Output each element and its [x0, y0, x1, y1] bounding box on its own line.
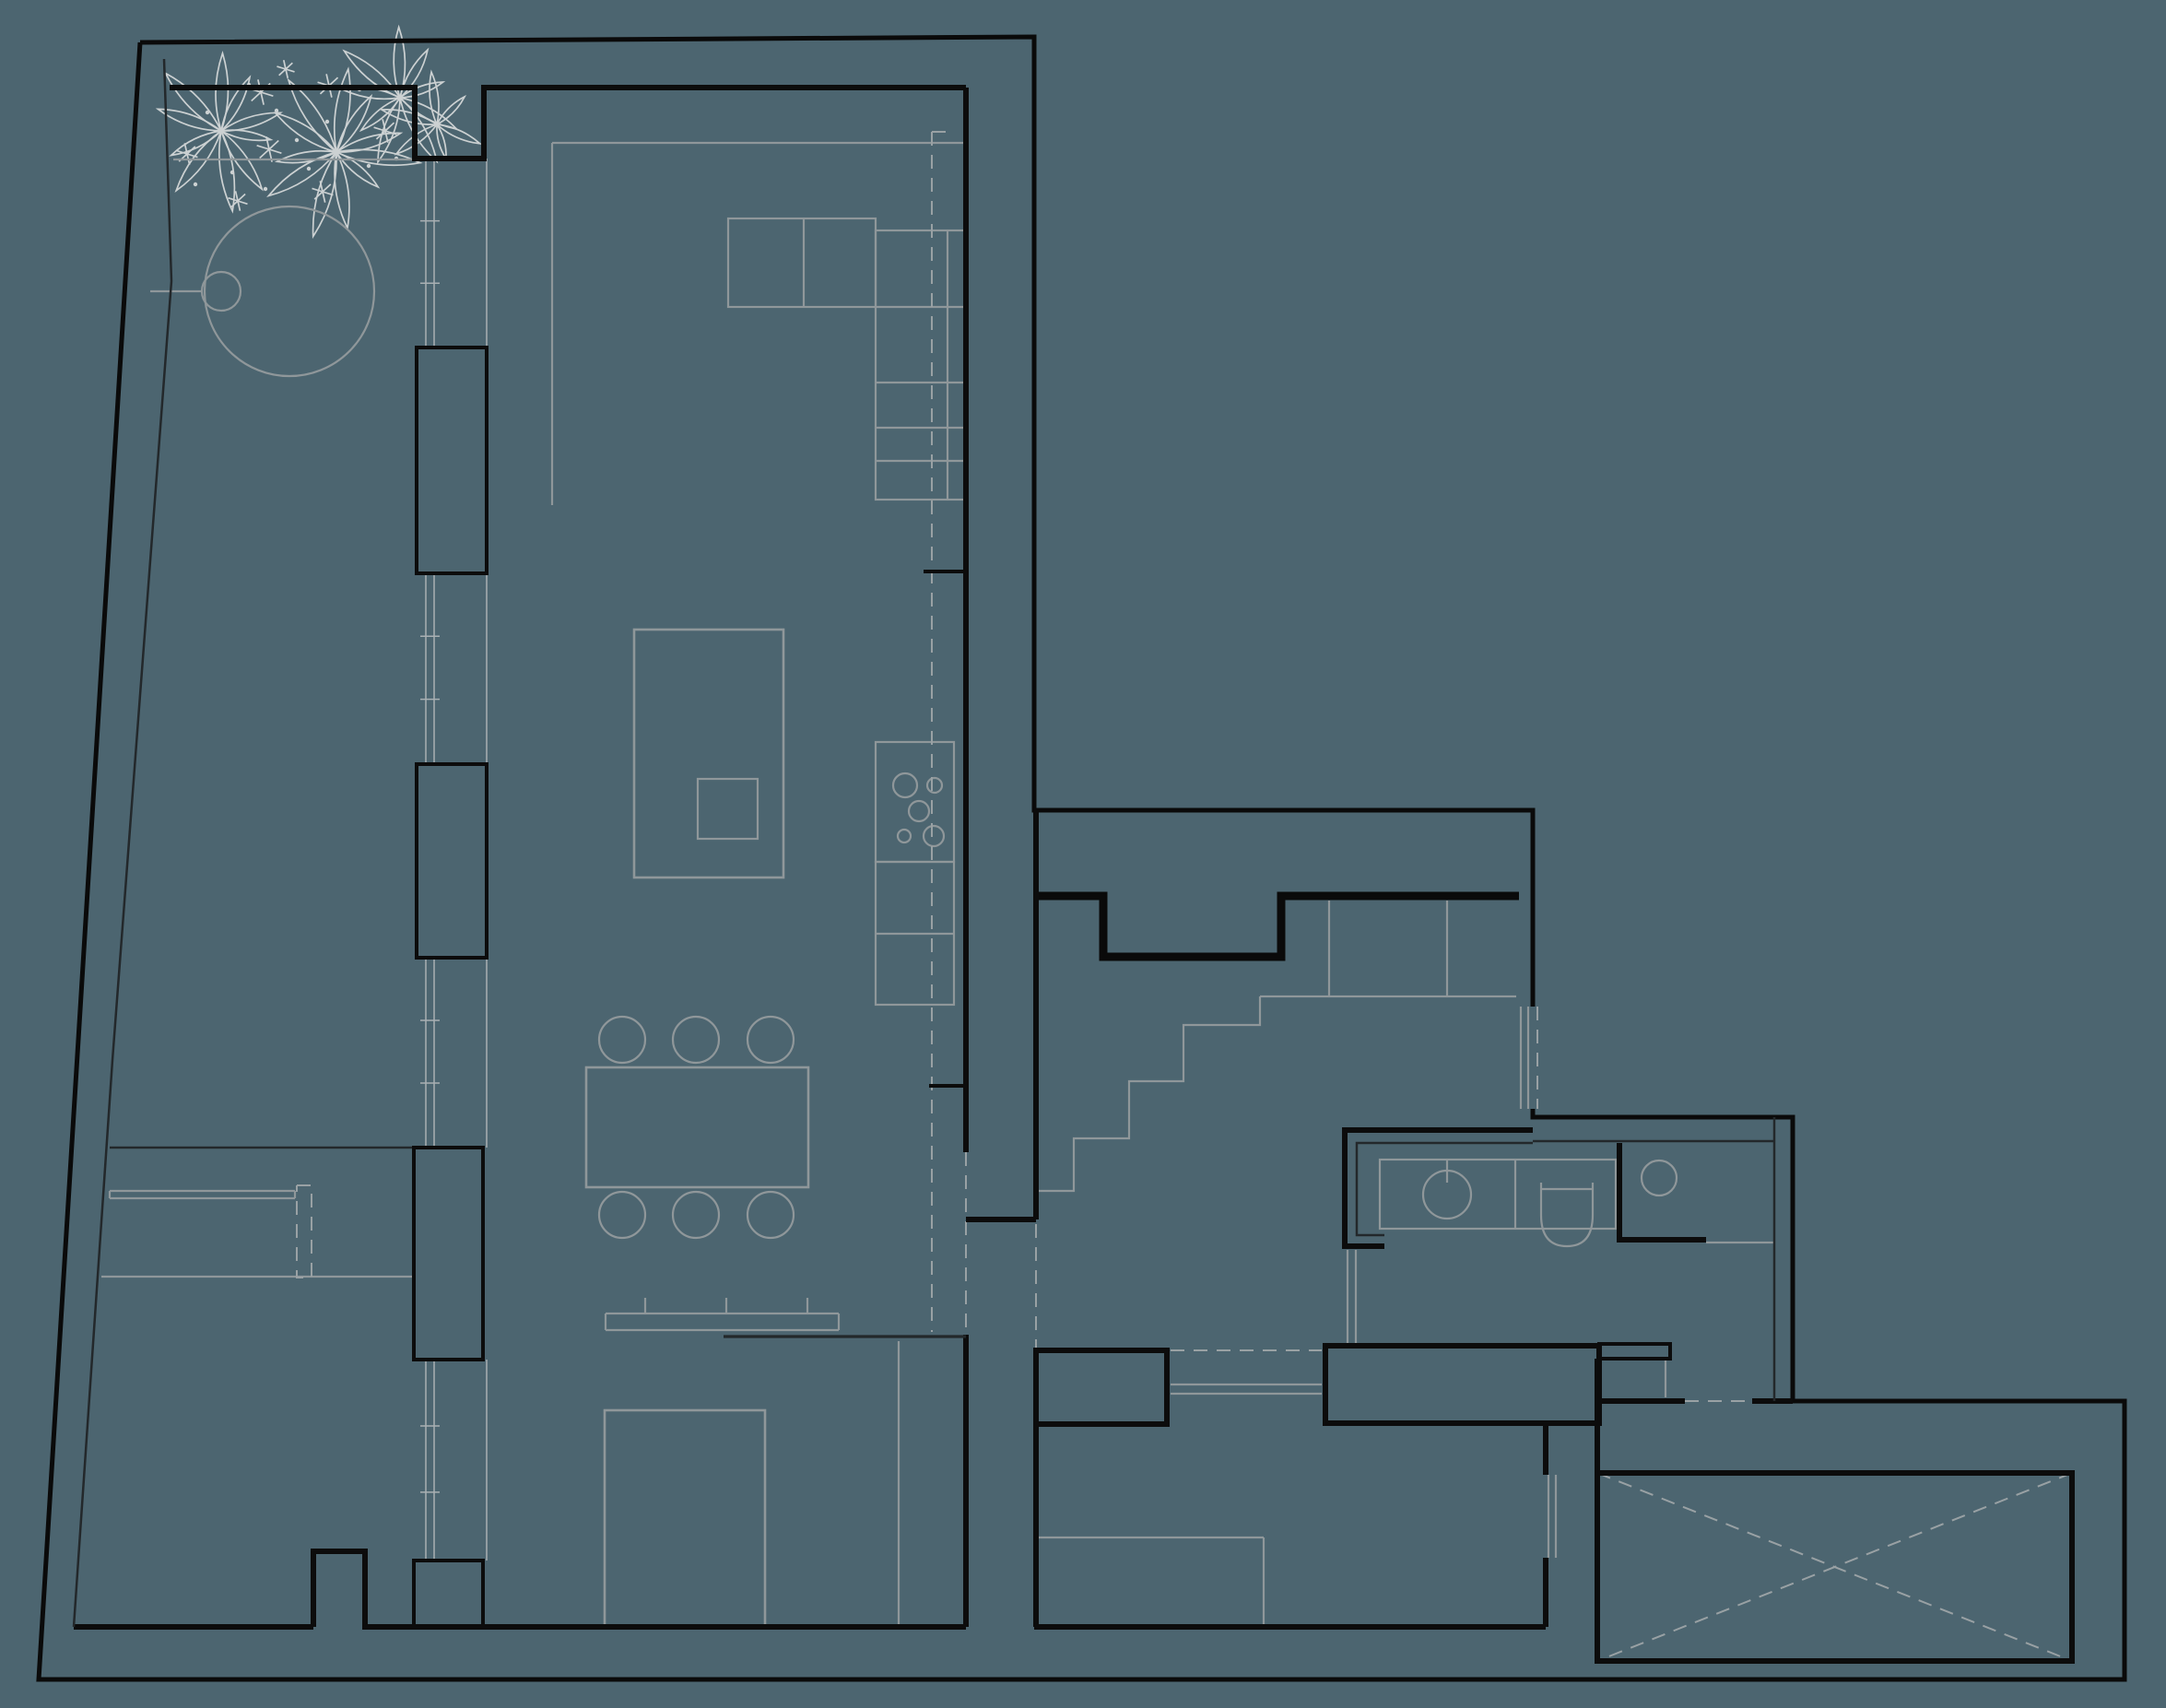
plant-leaf	[437, 124, 446, 159]
plant-leaf	[437, 97, 465, 124]
plant-leaf	[361, 98, 400, 130]
sprig-ray	[238, 201, 240, 211]
sprig-ray	[228, 198, 238, 201]
sprig-ray	[187, 147, 195, 154]
dining-chair-6	[748, 1192, 794, 1238]
sprig-ray	[238, 201, 248, 204]
dining-chair-5	[673, 1192, 719, 1238]
dining-chair-4	[599, 1192, 645, 1238]
plant-leaf	[221, 130, 271, 140]
walls-layer	[39, 37, 2125, 1679]
plant-cluster-1	[158, 53, 280, 211]
hall-wall-block-left	[1036, 1350, 1167, 1424]
plant-leaf	[158, 109, 221, 131]
dining-chair-3	[748, 1017, 794, 1063]
hall-wall-block-right	[1325, 1346, 1599, 1423]
boundary-top-right	[140, 37, 1533, 1007]
island-sink	[698, 779, 758, 839]
plant-dot-11	[264, 187, 267, 191]
plant-dot-3	[367, 164, 371, 168]
bath1-inner-line	[1357, 1143, 1533, 1235]
bottom-inner-wall-left	[74, 1551, 966, 1627]
sprig-ray	[329, 77, 338, 86]
sprig-ray	[257, 146, 269, 149]
sprig-ray	[238, 194, 245, 201]
kitchen-tall-units	[876, 230, 966, 500]
floor-plan-page	[0, 0, 2166, 1708]
plant-leaf	[335, 69, 350, 152]
fridge-unit	[728, 218, 876, 307]
burner-3	[909, 801, 929, 821]
living-top-wall	[170, 88, 966, 159]
plant-leaf	[345, 51, 400, 98]
sprig-ray	[312, 188, 323, 192]
window-pier-3	[414, 1148, 483, 1360]
plant-dot-0	[275, 109, 278, 112]
glazing-layer	[420, 159, 487, 1561]
burner-4	[898, 830, 911, 842]
sprig-ray	[261, 92, 273, 96]
window-pier-1	[417, 347, 487, 573]
plant-leaf	[430, 72, 439, 124]
dining-chair-1	[599, 1017, 645, 1063]
plant-sprig-0	[249, 79, 274, 104]
sprig-ray	[323, 192, 325, 203]
window-pier-2	[417, 764, 487, 958]
dining-table	[586, 1067, 808, 1187]
burner-5	[924, 826, 944, 846]
sprig-ray	[326, 74, 329, 86]
plant-leaf	[216, 53, 229, 131]
sprig-ray	[385, 123, 394, 131]
bath1-counter	[1380, 1160, 1616, 1229]
plant-leaf	[382, 110, 437, 124]
kitchen-island	[634, 630, 783, 878]
bath2-partition	[1619, 1143, 1706, 1240]
plant-dot-7	[230, 171, 234, 174]
burner-2	[927, 778, 942, 793]
plant-dot-10	[295, 138, 299, 142]
tree-canopy	[205, 206, 374, 376]
plant-leaf	[176, 131, 221, 191]
tree-pot	[202, 272, 241, 311]
sprig-ray	[323, 184, 331, 192]
dining-chair-2	[673, 1017, 719, 1063]
sprig-ray	[252, 92, 261, 101]
sprig-ray	[286, 63, 292, 69]
sprig-ray	[269, 149, 281, 153]
plant-sprig-7	[277, 60, 294, 78]
desk-chair-dashed	[297, 1185, 312, 1278]
bed	[605, 1410, 765, 1627]
plant-dot-8	[325, 120, 329, 124]
plants-layer	[158, 27, 479, 236]
furniture-layer	[101, 143, 1774, 1627]
sprig-ray	[279, 69, 286, 76]
boundary-right-bottom-left	[39, 42, 2125, 1679]
plant-dot-9	[194, 183, 197, 186]
plant-leaf	[437, 124, 480, 144]
burner-1	[893, 773, 917, 797]
sprig-ray	[236, 191, 238, 201]
toilet-bowl	[1541, 1183, 1593, 1246]
sprig-ray	[260, 149, 269, 159]
window-pier-4	[414, 1561, 483, 1627]
bath2-sink	[1642, 1160, 1677, 1196]
dashed-layer	[297, 132, 2072, 1661]
sprig-ray	[269, 140, 278, 149]
plant-dot-1	[307, 167, 311, 171]
sprig-ray	[261, 92, 264, 105]
plant-sprig-6	[228, 191, 247, 210]
plant-dot-4	[206, 111, 209, 114]
stair-steps	[1036, 996, 1260, 1191]
floor-plan-canvas	[0, 0, 2166, 1708]
hall-wall-cap	[1599, 1344, 1670, 1359]
plant-leaf	[166, 74, 221, 131]
